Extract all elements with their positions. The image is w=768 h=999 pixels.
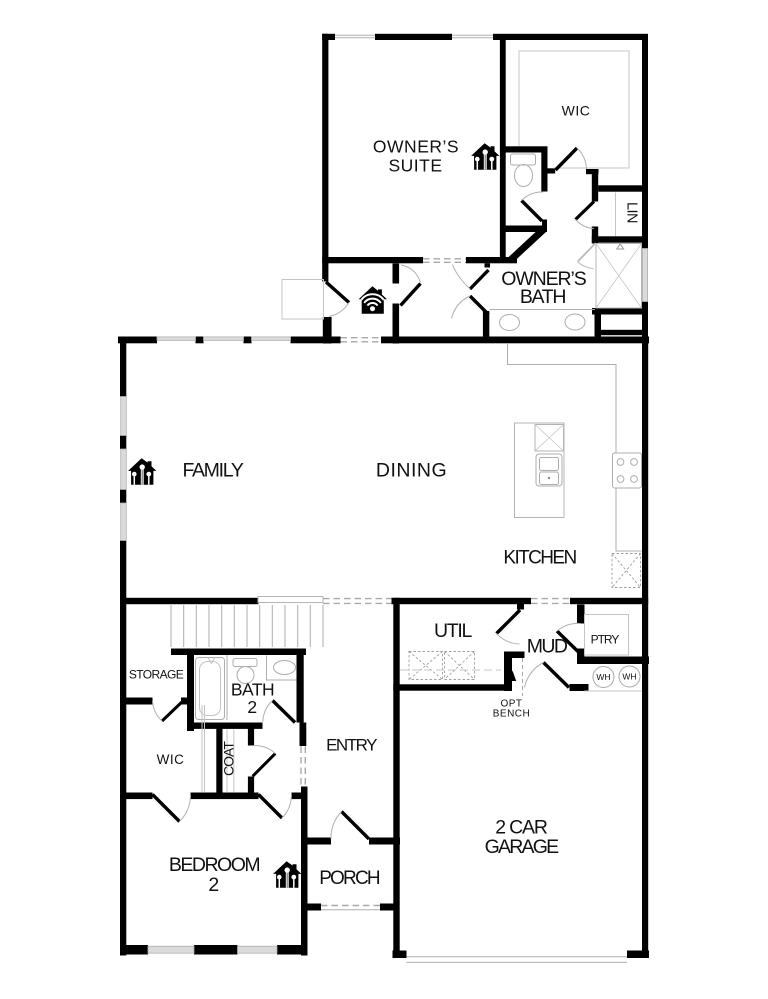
svg-text:STORAGE: STORAGE: [129, 668, 184, 682]
svg-text:BATH: BATH: [520, 286, 566, 308]
svg-text:2: 2: [208, 874, 219, 896]
svg-text:2: 2: [247, 697, 257, 717]
svg-text:FAMILY: FAMILY: [182, 460, 243, 482]
svg-text:DINING: DINING: [376, 460, 447, 482]
svg-text:SUITE: SUITE: [388, 156, 442, 176]
svg-text:BEDROOM: BEDROOM: [169, 854, 260, 876]
svg-text:UTIL: UTIL: [434, 620, 473, 642]
svg-text:OWNER’S: OWNER’S: [373, 137, 459, 157]
svg-text:WH: WH: [596, 672, 610, 682]
svg-text:WIC: WIC: [157, 752, 185, 767]
svg-text:MUD: MUD: [527, 636, 568, 658]
svg-text:BENCH: BENCH: [493, 709, 531, 720]
svg-text:WH: WH: [622, 672, 636, 682]
svg-text:PTRY: PTRY: [591, 633, 620, 647]
svg-text:PORCH: PORCH: [319, 868, 380, 889]
svg-text:LIN: LIN: [624, 202, 640, 223]
svg-text:COAT: COAT: [221, 741, 237, 776]
svg-text:KITCHEN: KITCHEN: [503, 548, 576, 569]
svg-text:GARAGE: GARAGE: [485, 836, 559, 858]
svg-text:ENTRY: ENTRY: [326, 736, 377, 755]
svg-text:WIC: WIC: [562, 103, 591, 119]
